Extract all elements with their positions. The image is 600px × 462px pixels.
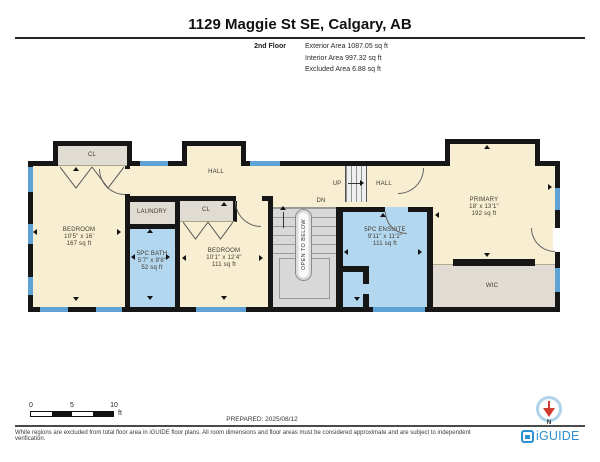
iguide-logo-icon [521,430,534,443]
room-dims: 10'1" x 12'4" [189,255,259,262]
bedroom-1-label: BEDROOM 10'5" x 16' 167 sq ft [44,227,114,248]
window [555,188,560,210]
window [196,307,246,312]
scale-segment [93,412,114,416]
wall-wc-side-lower [363,294,369,307]
window [28,167,33,192]
iguide-logo: iGUIDE [521,428,580,444]
scale-bar [30,411,114,417]
wall-wc-side-upper [363,272,369,284]
dimension-arrow-icon [221,202,227,206]
scale-tick-0: 0 [26,402,36,409]
bath-label: 5PC BATH 5'7" x 9'8" 52 sq ft [122,251,182,272]
scale-unit: ft [118,410,122,417]
window [140,161,168,166]
room-area: 167 sq ft [44,241,114,248]
window [96,307,122,312]
scale-tick-10: 10 [107,402,121,409]
up-label: UP [322,181,352,188]
window [40,307,68,312]
scale-segment [52,412,73,416]
stair-direction-line [283,212,284,228]
dimension-arrow-icon [73,297,79,301]
primary-label: PRIMARY 18' x 13'1" 192 sq ft [449,197,519,218]
room-name: HALL [191,169,241,176]
window [373,307,425,312]
hall-2-label: HALL [359,181,409,188]
dimension-arrow-icon [33,229,37,235]
door-opening [125,169,130,194]
dn-label: DN [306,198,336,205]
room-area: 52 sq ft [122,265,182,272]
room-name: 5PC BATH [122,251,182,258]
room-name: BEDROOM [189,248,259,255]
stair-up-text: UP [322,181,352,188]
scale-segment [31,412,52,416]
dimension-arrow-icon [259,255,263,261]
stair-direction-arrow-icon [280,206,286,210]
compass-needle-head [543,408,555,417]
wic-label: WIC [462,283,522,290]
dimension-arrow-icon [435,212,439,218]
closet-2-label: CL [186,207,226,214]
footer-divider [15,425,585,427]
open-to-below-label: OPEN TO BELOW [301,219,307,270]
iguide-logo-text: iGUIDE [536,429,580,443]
room-name: CL [186,207,226,214]
dimension-arrow-icon [548,184,552,190]
hall-label: HALL [191,169,241,176]
dimension-arrow-icon [147,229,153,233]
window [250,161,280,166]
stair-down-text: DN [306,198,336,205]
wall-wic-bar [453,259,535,266]
dimension-arrow-icon [117,229,121,235]
room-dims: 18' x 13'1" [449,204,519,211]
ensuite-label: 5PC ENSUITE 9'11" x 11'2" 111 sq ft [350,227,420,248]
room-name: 5PC ENSUITE [350,227,420,234]
room-hall-bump [187,146,241,168]
room-name: HALL [359,181,409,188]
open-to-below-pill: OPEN TO BELOW [295,209,312,281]
room-dims: 9'11" x 11'2" [350,234,420,241]
iguide-logo-glyph [525,435,530,439]
room-name: PRIMARY [449,197,519,204]
scale-tick-5: 5 [67,402,77,409]
bedroom-2-label: BEDROOM 10'1" x 12'4" 111 sq ft [189,248,259,269]
room-dims: 10'5" x 16' [44,234,114,241]
room-name: WIC [462,283,522,290]
dimension-arrow-icon [221,296,227,300]
room-area: 111 sq ft [350,241,420,248]
room-area: 192 sq ft [449,211,519,218]
room-name: LAUNDRY [127,209,177,216]
dimension-arrow-icon [354,297,360,301]
dimension-arrow-icon [418,249,422,255]
closet-doors-icon [60,166,124,190]
laundry-label: LAUNDRY [127,209,177,216]
scale-segment [72,412,93,416]
disclaimer-text: White regions are excluded from total fl… [15,430,495,442]
window [28,277,33,295]
room-name: CL [72,152,112,159]
dimension-arrow-icon [182,255,186,261]
dimension-arrow-icon [380,213,386,217]
window [555,268,560,292]
dimension-arrow-icon [344,249,348,255]
floor-plan: OPEN TO BELOW [0,0,600,462]
room-dims: 5'7" x 9'8" [122,258,182,265]
dimension-arrow-icon [484,253,490,257]
dimension-arrow-icon [73,167,79,171]
room-area: 111 sq ft [189,262,259,269]
closet-1-label: CL [72,152,112,159]
dimension-arrow-icon [484,145,490,149]
floor-plan-page: 1129 Maggie St SE, Calgary, AB 2nd Floor… [0,0,600,462]
room-name: BEDROOM [44,227,114,234]
prepared-date: PREPARED: 2025/08/12 [172,416,352,423]
dimension-arrow-icon [147,296,153,300]
closet-doors-icon [183,221,233,241]
compass-icon [536,396,562,422]
room-primary-bump [450,144,535,168]
